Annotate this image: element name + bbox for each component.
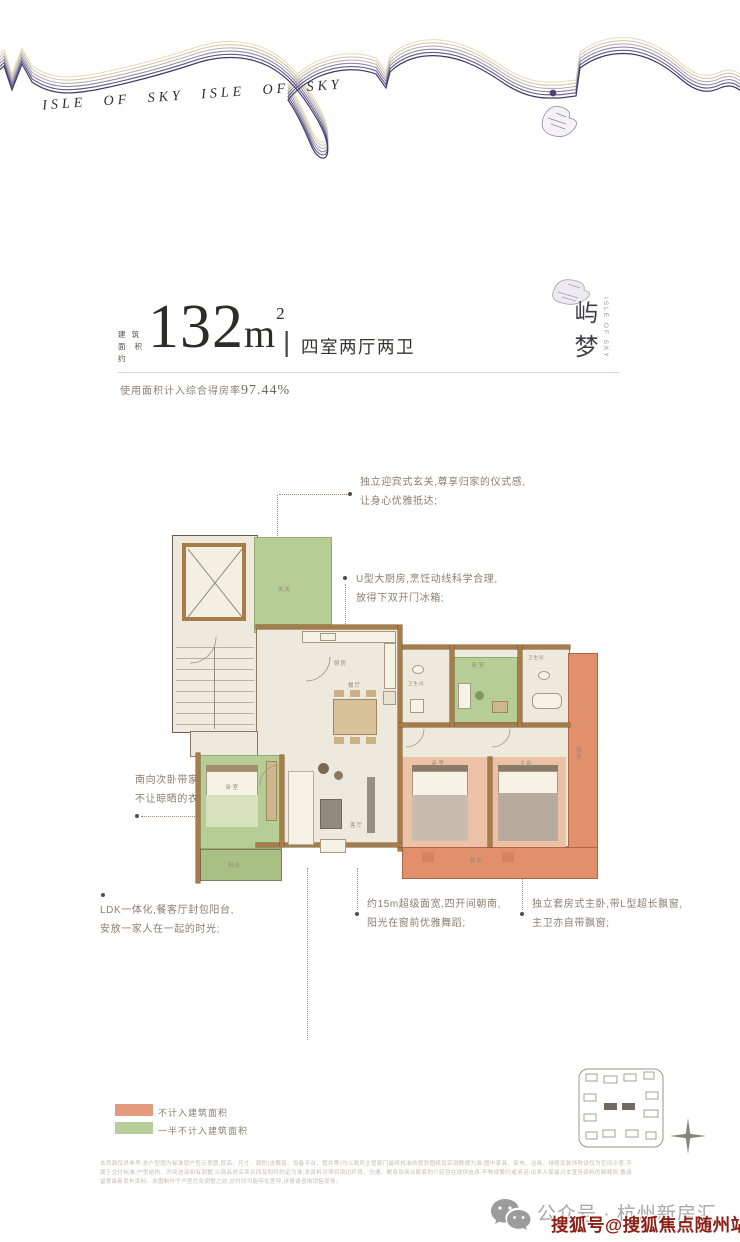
area-prefix-line1: 建 筑 (118, 329, 144, 341)
area-exponent: 2 (276, 304, 286, 323)
area-unit: m (244, 311, 276, 356)
efficiency-note: 使用面积计入综合得房率97.44% (120, 382, 290, 399)
label-bedroom-top: 卧室 (472, 661, 485, 669)
leader-dot-master (520, 912, 524, 916)
note-ldk: LDK一体化,餐客厅封包阳台, 安放一家人在一起的时光; (100, 902, 234, 939)
label-living: 客厅 (350, 821, 363, 829)
leader-line-entry-h (279, 494, 347, 495)
note-width-line2: 阳光在窗前优雅舞蹈; (367, 915, 501, 934)
wave-island-sketch (542, 106, 576, 136)
leader-line-ldk (307, 868, 308, 1040)
compass-icon (670, 1118, 706, 1154)
label-bath2: 卫生间 (528, 655, 545, 661)
disclaimer-text: 本页面仅供参考:本户型图为标准层户型示意图,层高、尺寸、面积(含飘窗、设备平台、… (100, 1160, 632, 1186)
wave-ornament (0, 0, 740, 185)
leader-dot-north-bedroom (135, 814, 139, 818)
leader-dot-ldk (101, 893, 105, 897)
brand-subtitle-vertical: ISLE OF SKY (602, 297, 609, 359)
area-prefix-label: 建 筑 面积约 (118, 329, 144, 365)
label-laundry-balcony: 阳台 (228, 861, 241, 869)
label-master: 主卧 (520, 759, 533, 767)
note-master-line2: 主卫亦自带飘窗; (532, 915, 683, 934)
note-master-line1: 独立套房式主卧,带L型超长飘窗, (532, 896, 683, 915)
plan-linework (170, 533, 626, 883)
label-bedroom-left: 卧室 (226, 783, 239, 791)
note-master: 独立套房式主卧,带L型超长飘窗, 主卫亦自带飘窗; (532, 896, 683, 933)
note-ldk-line1: LDK一体化,餐客厅封包阳台, (100, 902, 234, 921)
sohu-watermark: 搜狐号@搜狐焦点随州站 (551, 1212, 740, 1237)
legend-swatch-not-counted (115, 1104, 153, 1116)
efficiency-label: 使用面积计入综合得房率 (120, 386, 241, 397)
efficiency-value: 97.44% (241, 383, 290, 398)
label-entry: 玄关 (278, 585, 291, 593)
floor-plan: 玄关 厨房 餐厅 客厅 卧室 阳台 卫生间 卧室 卫生间 卧室 主卧 飘窗 飘窗 (170, 533, 626, 883)
leader-dot-width (355, 912, 359, 916)
room-layout-label: 四室两厅两卫 (301, 334, 415, 359)
label-kitchen: 厨房 (334, 659, 347, 667)
wechat-icon (490, 1197, 532, 1233)
area-value: 132m2 (148, 296, 286, 358)
title-separator: | (283, 326, 290, 358)
brand-name-vertical: 屿梦 (566, 300, 601, 368)
label-bath1: 卫生间 (408, 681, 425, 687)
leader-dot-entry (348, 492, 352, 496)
label-bay-bottom: 飘窗 (470, 856, 483, 864)
note-ldk-line2: 安放一家人在一起的时光; (100, 921, 234, 940)
title-divider-line (118, 372, 620, 373)
poster-canvas: ISLE OF SKY ISLE OF SKY 建 筑 面积约 132m2 | … (0, 0, 740, 1242)
note-width: 约15m超级面宽,四开间朝南, 阳光在窗前优雅舞蹈; (367, 896, 501, 933)
note-entry: 独立迎宾式玄关,尊享归家的仪式感, 让身心优雅抵达; (360, 474, 526, 511)
area-prefix-line2: 面积约 (118, 341, 144, 365)
legend-label-half-counted: 一半不计入建筑面积 (158, 1124, 248, 1137)
note-width-line1: 约15m超级面宽,四开间朝南, (367, 896, 501, 915)
note-entry-line2: 让身心优雅抵达; (360, 493, 526, 512)
label-dining: 餐厅 (348, 681, 361, 689)
legend-swatch-half-counted (115, 1122, 153, 1134)
label-bay-right: 飘窗 (574, 747, 582, 760)
wave-island-dot (550, 90, 557, 97)
site-plan-sketch (576, 1066, 668, 1152)
legend-label-not-counted: 不计入建筑面积 (158, 1106, 228, 1119)
label-bedroom-mid: 卧室 (432, 759, 445, 767)
note-entry-line1: 独立迎宾式玄关,尊享归家的仪式感, (360, 474, 526, 493)
area-number-text: 132 (148, 293, 244, 361)
